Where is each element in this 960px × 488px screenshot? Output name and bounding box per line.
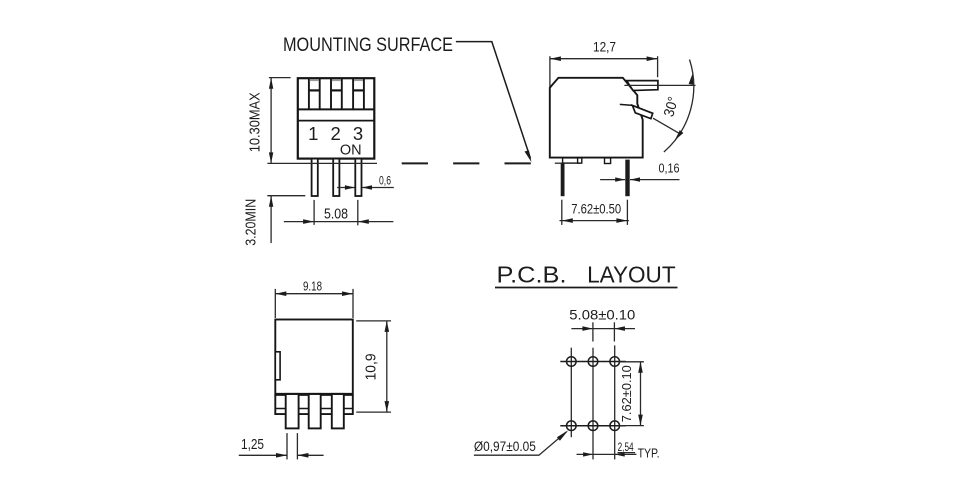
svg-text:TYP.: TYP. [638,447,660,461]
svg-text:12,7: 12,7 [593,39,616,55]
svg-text:10,9: 10,9 [364,353,380,380]
svg-text:ON: ON [340,142,362,158]
svg-text:Ø0,97±0.05: Ø0,97±0.05 [474,439,536,454]
svg-text:0,16: 0,16 [659,161,680,176]
svg-text:1: 1 [308,123,318,144]
svg-text:3.20MIN: 3.20MIN [244,199,260,246]
svg-text:MOUNTING SURFACE: MOUNTING SURFACE [283,35,453,56]
svg-text:5.08±0.10: 5.08±0.10 [569,307,635,323]
svg-text:P.C.B.: P.C.B. [497,262,567,288]
svg-text:7.62±0.10: 7.62±0.10 [619,365,634,422]
svg-text:5.08: 5.08 [324,207,348,223]
svg-text:3: 3 [353,123,363,144]
svg-text:9.18: 9.18 [303,278,322,293]
svg-text:7.62±0.50: 7.62±0.50 [571,201,621,216]
svg-text:LAYOUT: LAYOUT [587,262,676,288]
svg-text:10.30MAX: 10.30MAX [248,92,264,152]
svg-text:0,6: 0,6 [379,173,391,187]
svg-text:1,25: 1,25 [241,437,264,453]
svg-text:2: 2 [331,123,341,144]
